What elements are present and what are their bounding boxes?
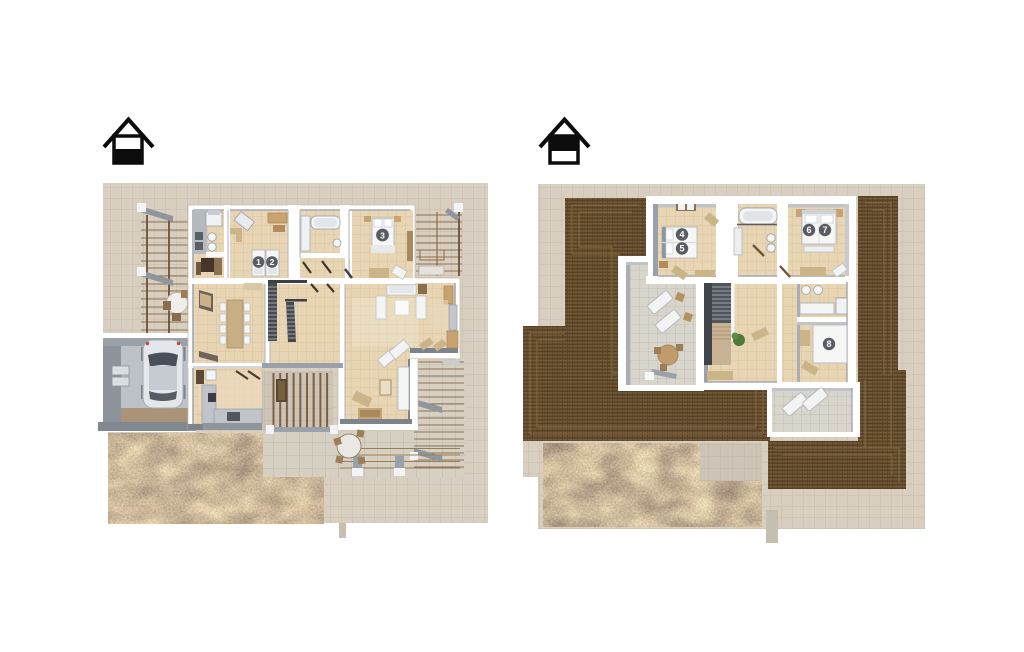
svg-text:8: 8 xyxy=(826,339,831,349)
svg-text:2: 2 xyxy=(270,257,275,267)
svg-text:4: 4 xyxy=(679,230,684,240)
svg-text:3: 3 xyxy=(380,230,385,240)
svg-text:7: 7 xyxy=(822,225,827,235)
svg-text:5: 5 xyxy=(679,244,684,254)
svg-text:6: 6 xyxy=(806,225,811,235)
svg-text:1: 1 xyxy=(256,257,261,267)
